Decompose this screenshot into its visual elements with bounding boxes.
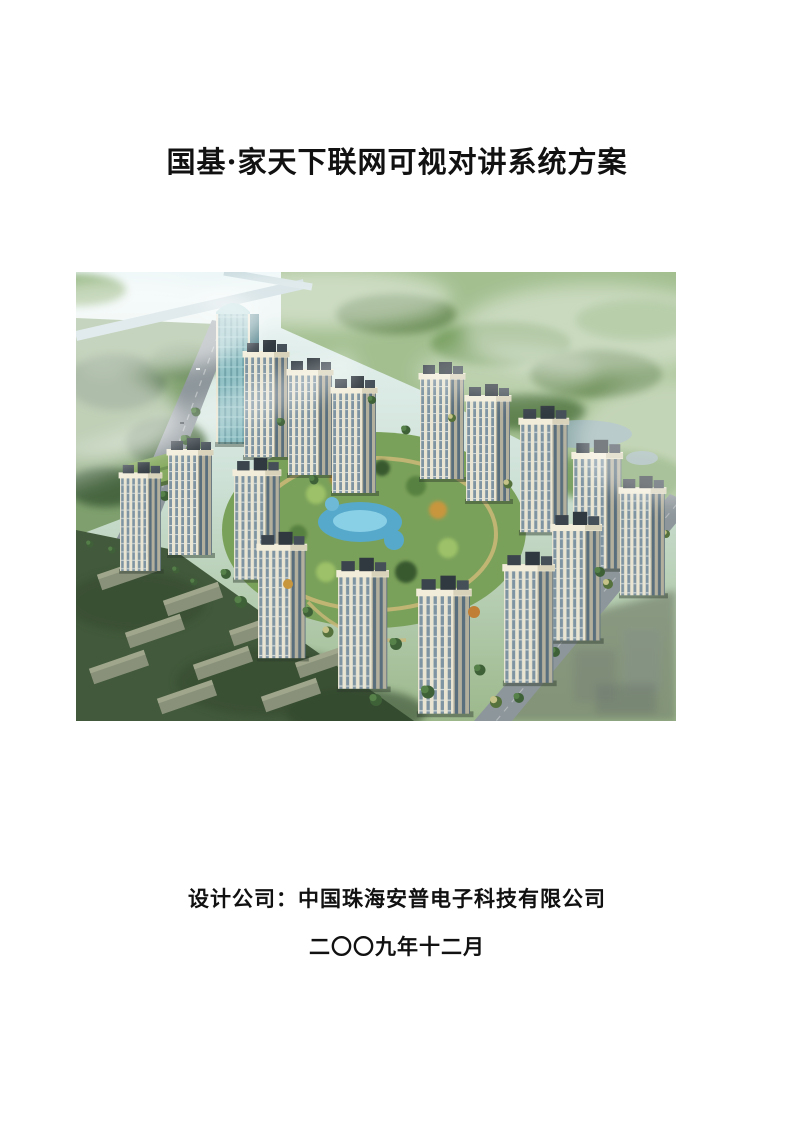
date-line: 二〇〇九年十二月 <box>0 932 794 962</box>
designer-line: 设计公司：中国珠海安普电子科技有限公司 <box>0 884 794 914</box>
aerial-render-svg <box>76 272 676 721</box>
document-title: 国基·家天下联网可视对讲系统方案 <box>0 144 794 180</box>
cover-image <box>76 272 676 721</box>
document-page: 国基·家天下联网可视对讲系统方案 <box>0 0 794 1123</box>
